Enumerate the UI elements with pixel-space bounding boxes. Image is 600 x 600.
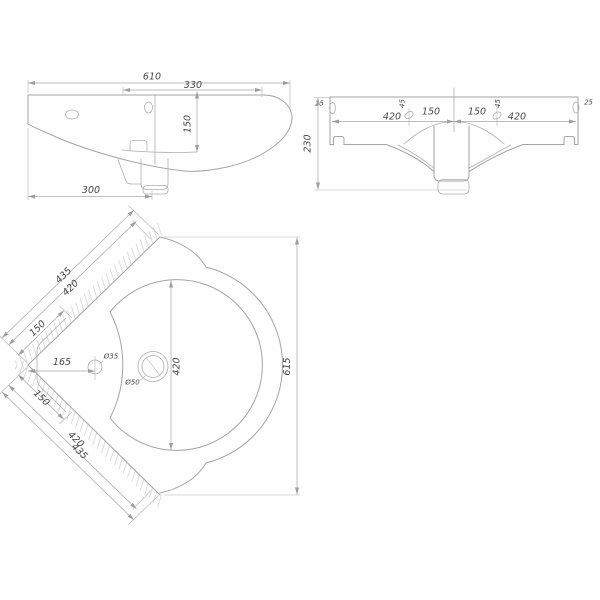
rear-view: 25 420 45 150 150 45 420 25 230	[303, 88, 593, 194]
dim-rear-center-left: 150	[422, 107, 440, 118]
dim-faucet-offset: 165	[53, 357, 71, 368]
front-overflow-boss	[130, 141, 147, 152]
wall-lower	[28, 365, 160, 495]
rear-left-perimeter	[330, 97, 386, 145]
dim-front-width: 610	[143, 72, 161, 83]
rear-wing-left-inner	[398, 145, 434, 168]
dim-lower-wall-outer: 435	[69, 441, 90, 462]
dim-overall-depth: 615	[282, 357, 293, 375]
dim-rear-edge-right: 25	[584, 99, 593, 107]
rear-trap-cup	[438, 180, 469, 195]
wall-upper	[28, 237, 160, 365]
dim-drain-hole: Ø50	[124, 379, 140, 387]
front-dimensions: 610 330 150 300	[28, 72, 290, 201]
dim-front-right-section: 330	[184, 80, 202, 91]
front-trap-pipe	[141, 159, 168, 190]
dim-rear-hole-drop-right: 45	[494, 99, 502, 108]
dim-bowl-width: 420	[172, 357, 183, 375]
technical-drawing-sheet: 610 330 150 300	[0, 0, 600, 600]
plan-bowl-edge	[110, 280, 262, 451]
plan-view: Ø35 Ø50 165 420 615 435 420 150	[0, 206, 300, 525]
front-deck-line	[122, 150, 197, 152]
dim-rear-edge-left: 25	[315, 100, 324, 108]
dim-rear-hole-drop-left: 45	[399, 99, 407, 108]
dim-front-drain-offset: 300	[82, 185, 100, 196]
front-outline	[28, 95, 292, 171]
dim-rear-hole-span-right: 420	[508, 112, 526, 123]
dim-front-deck-height: 150	[183, 115, 194, 133]
plan-drain-slash	[146, 358, 161, 377]
rear-trap-column	[434, 126, 469, 181]
rear-right-perimeter	[523, 97, 578, 145]
washbasin-drawing: 610 330 150 300	[0, 0, 600, 600]
front-overflow-hole	[66, 110, 79, 119]
rear-dimensions: 25 420 45 150 150 45 420 25 230	[303, 98, 593, 191]
rear-wing-left	[386, 145, 434, 172]
rear-wing-right-inner	[469, 145, 511, 168]
rear-wing-right	[469, 145, 523, 172]
dim-rear-height: 230	[303, 134, 314, 152]
front-view: 610 330 150 300	[28, 72, 292, 201]
front-faucet-hole	[145, 102, 153, 113]
dim-rear-hole-span-left: 420	[383, 112, 401, 123]
plan-dimensions: Ø35 Ø50 165 420 615 435 420 150	[0, 206, 300, 525]
dim-rear-center-right: 150	[468, 107, 486, 118]
dim-faucet-hole: Ø35	[103, 353, 119, 361]
